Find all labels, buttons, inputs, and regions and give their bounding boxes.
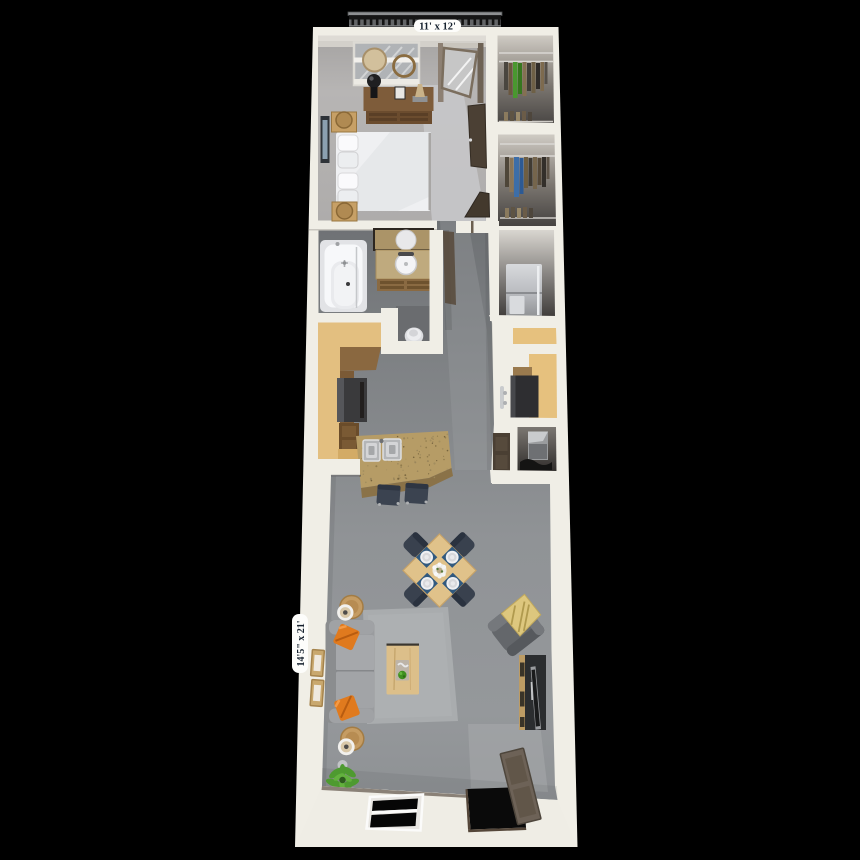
svg-text:14'5" x 21': 14'5" x 21' (296, 620, 307, 666)
svg-text:11' x 12': 11' x 12' (419, 22, 456, 33)
